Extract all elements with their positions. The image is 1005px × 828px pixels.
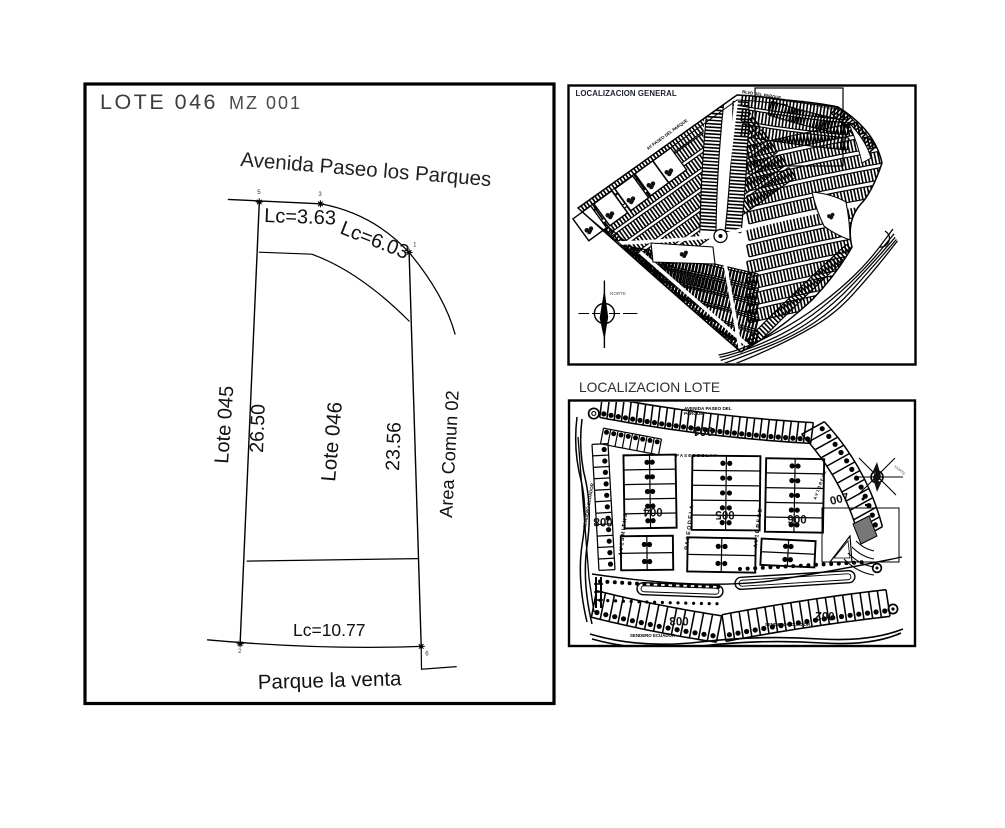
svg-text:008: 008	[593, 515, 613, 527]
svg-text:003: 003	[669, 614, 688, 626]
svg-text:Parque la venta: Parque la venta	[258, 667, 403, 694]
svg-text:006: 006	[787, 512, 806, 524]
svg-text:26.50: 26.50	[246, 403, 270, 453]
svg-text:NORTE: NORTE	[893, 465, 906, 477]
svg-text:23.56: 23.56	[382, 422, 406, 472]
svg-text:A V 1 S M I T H S: A V 1 S M I T H S	[618, 513, 629, 556]
svg-text:3: 3	[318, 192, 322, 198]
svg-text:LOCALIZACION GENERAL: LOCALIZACION GENERAL	[576, 89, 677, 98]
svg-text:004: 004	[643, 505, 663, 517]
svg-text:NORTE: NORTE	[610, 291, 626, 296]
svg-text:5: 5	[257, 190, 261, 196]
svg-text:Lc=3.63: Lc=3.63	[264, 205, 336, 229]
svg-text:6: 6	[425, 651, 429, 657]
svg-text:2: 2	[238, 649, 242, 655]
svg-text:Lote 045: Lote 045	[211, 385, 238, 464]
svg-text:Lc=10.77: Lc=10.77	[293, 620, 366, 640]
svg-text:Avenida Paseo los Parques: Avenida Paseo los Parques	[240, 148, 493, 191]
svg-text:SENDERO ECUADOR: SENDERO ECUADOR	[765, 622, 811, 627]
svg-text:SENDERO ECUADOR: SENDERO ECUADOR	[630, 633, 676, 638]
svg-text:002: 002	[815, 609, 834, 621]
svg-text:PARQUE: PARQUE	[684, 411, 703, 416]
svg-text:Lote 046: Lote 046	[317, 401, 347, 483]
svg-text:1: 1	[413, 242, 417, 248]
svg-text:005: 005	[715, 508, 735, 520]
svg-text:007: 007	[829, 492, 851, 508]
svg-text:MZ 001: MZ 001	[229, 93, 302, 113]
svg-text:Area Comun 02: Area Comun 02	[436, 390, 463, 518]
svg-text:LOCALIZACION LOTE: LOCALIZACION LOTE	[579, 380, 720, 395]
svg-text:P A S E O D E L A: P A S E O D E L A	[684, 505, 695, 550]
svg-text:001: 001	[693, 424, 714, 438]
svg-text:LOTE 046: LOTE 046	[100, 90, 218, 114]
